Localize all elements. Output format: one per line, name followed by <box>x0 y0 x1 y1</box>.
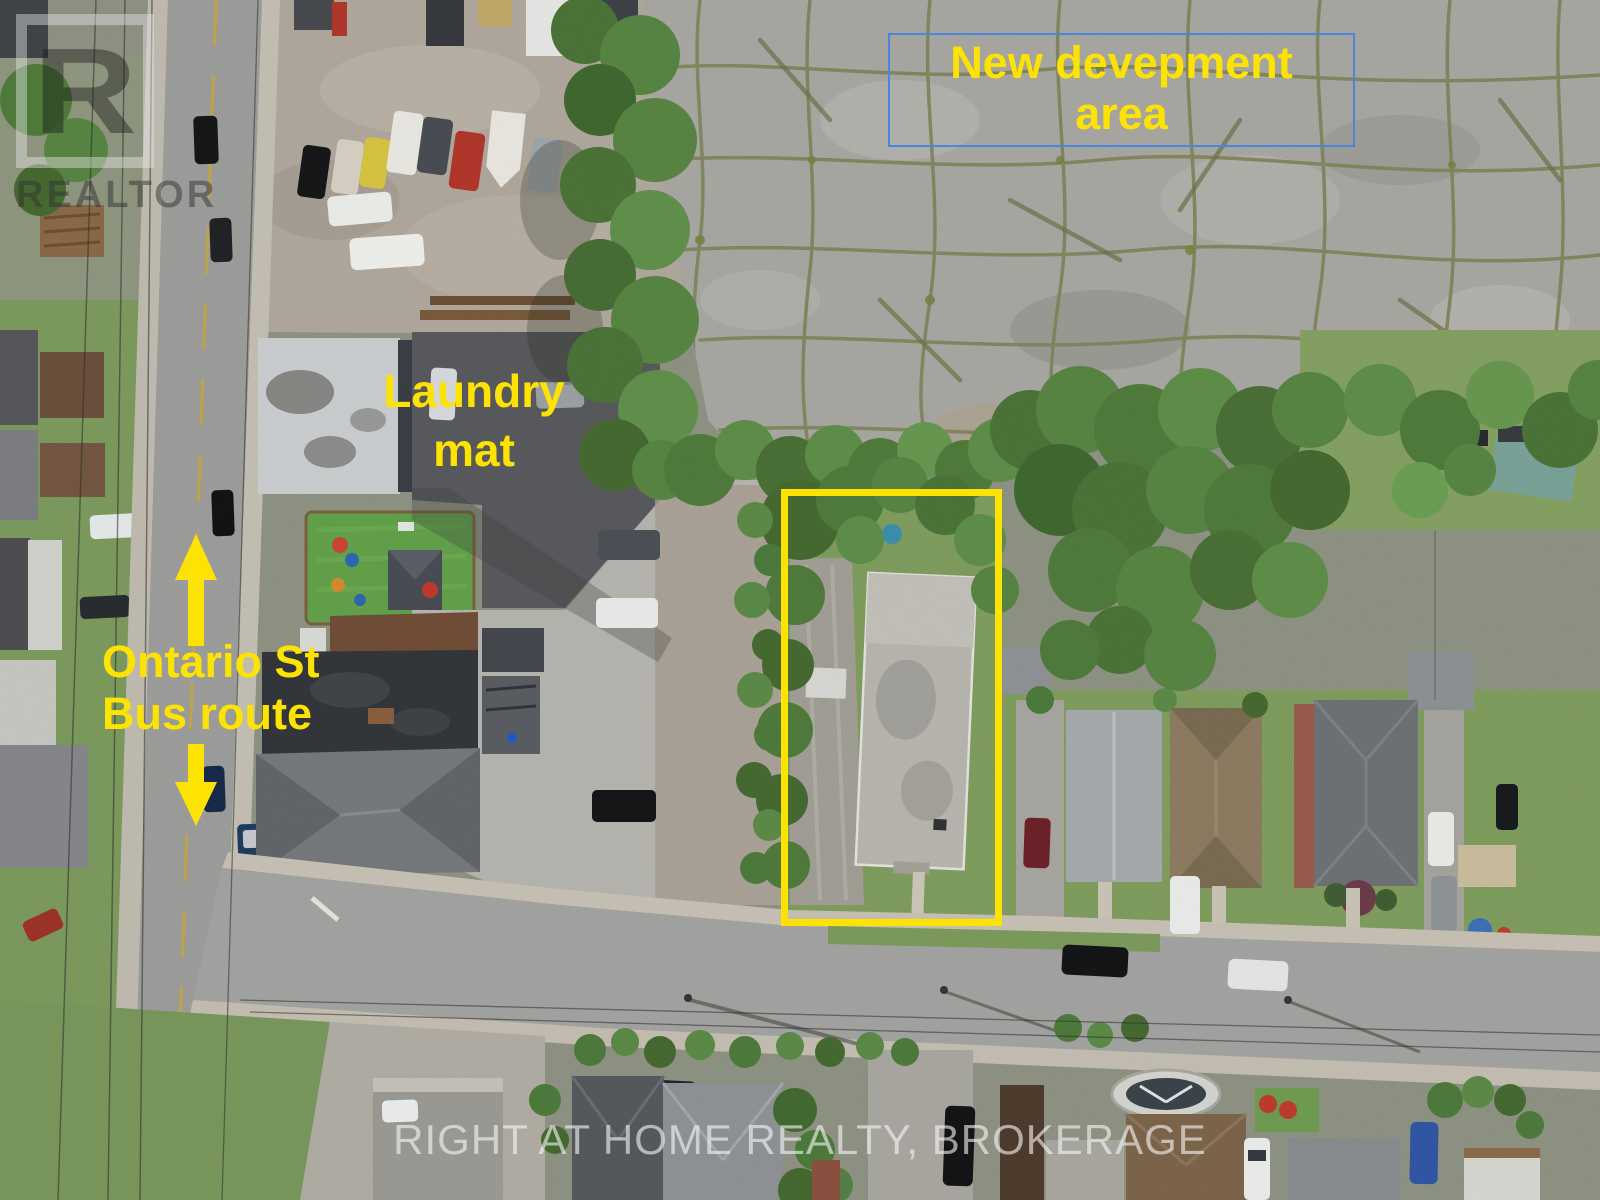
realtor-word: REALTOR <box>16 174 217 217</box>
bus-route-label: Ontario St Bus route <box>102 636 320 740</box>
realtor-logo: R <box>16 14 154 168</box>
realtor-watermark: R REALTOR <box>16 14 217 217</box>
property-outline <box>781 489 1002 926</box>
laundromat-label: Laundry mat <box>368 362 580 480</box>
development-area-label: New devepment area <box>890 37 1353 140</box>
aerial-photo: R REALTOR New devepment area Laundry mat… <box>0 0 1600 1200</box>
realtor-logo-letter: R <box>33 21 137 161</box>
brokerage-watermark: RIGHT AT HOME REALTY, BROKERAGE <box>0 1116 1600 1164</box>
development-area-box: New devepment area <box>888 33 1355 147</box>
